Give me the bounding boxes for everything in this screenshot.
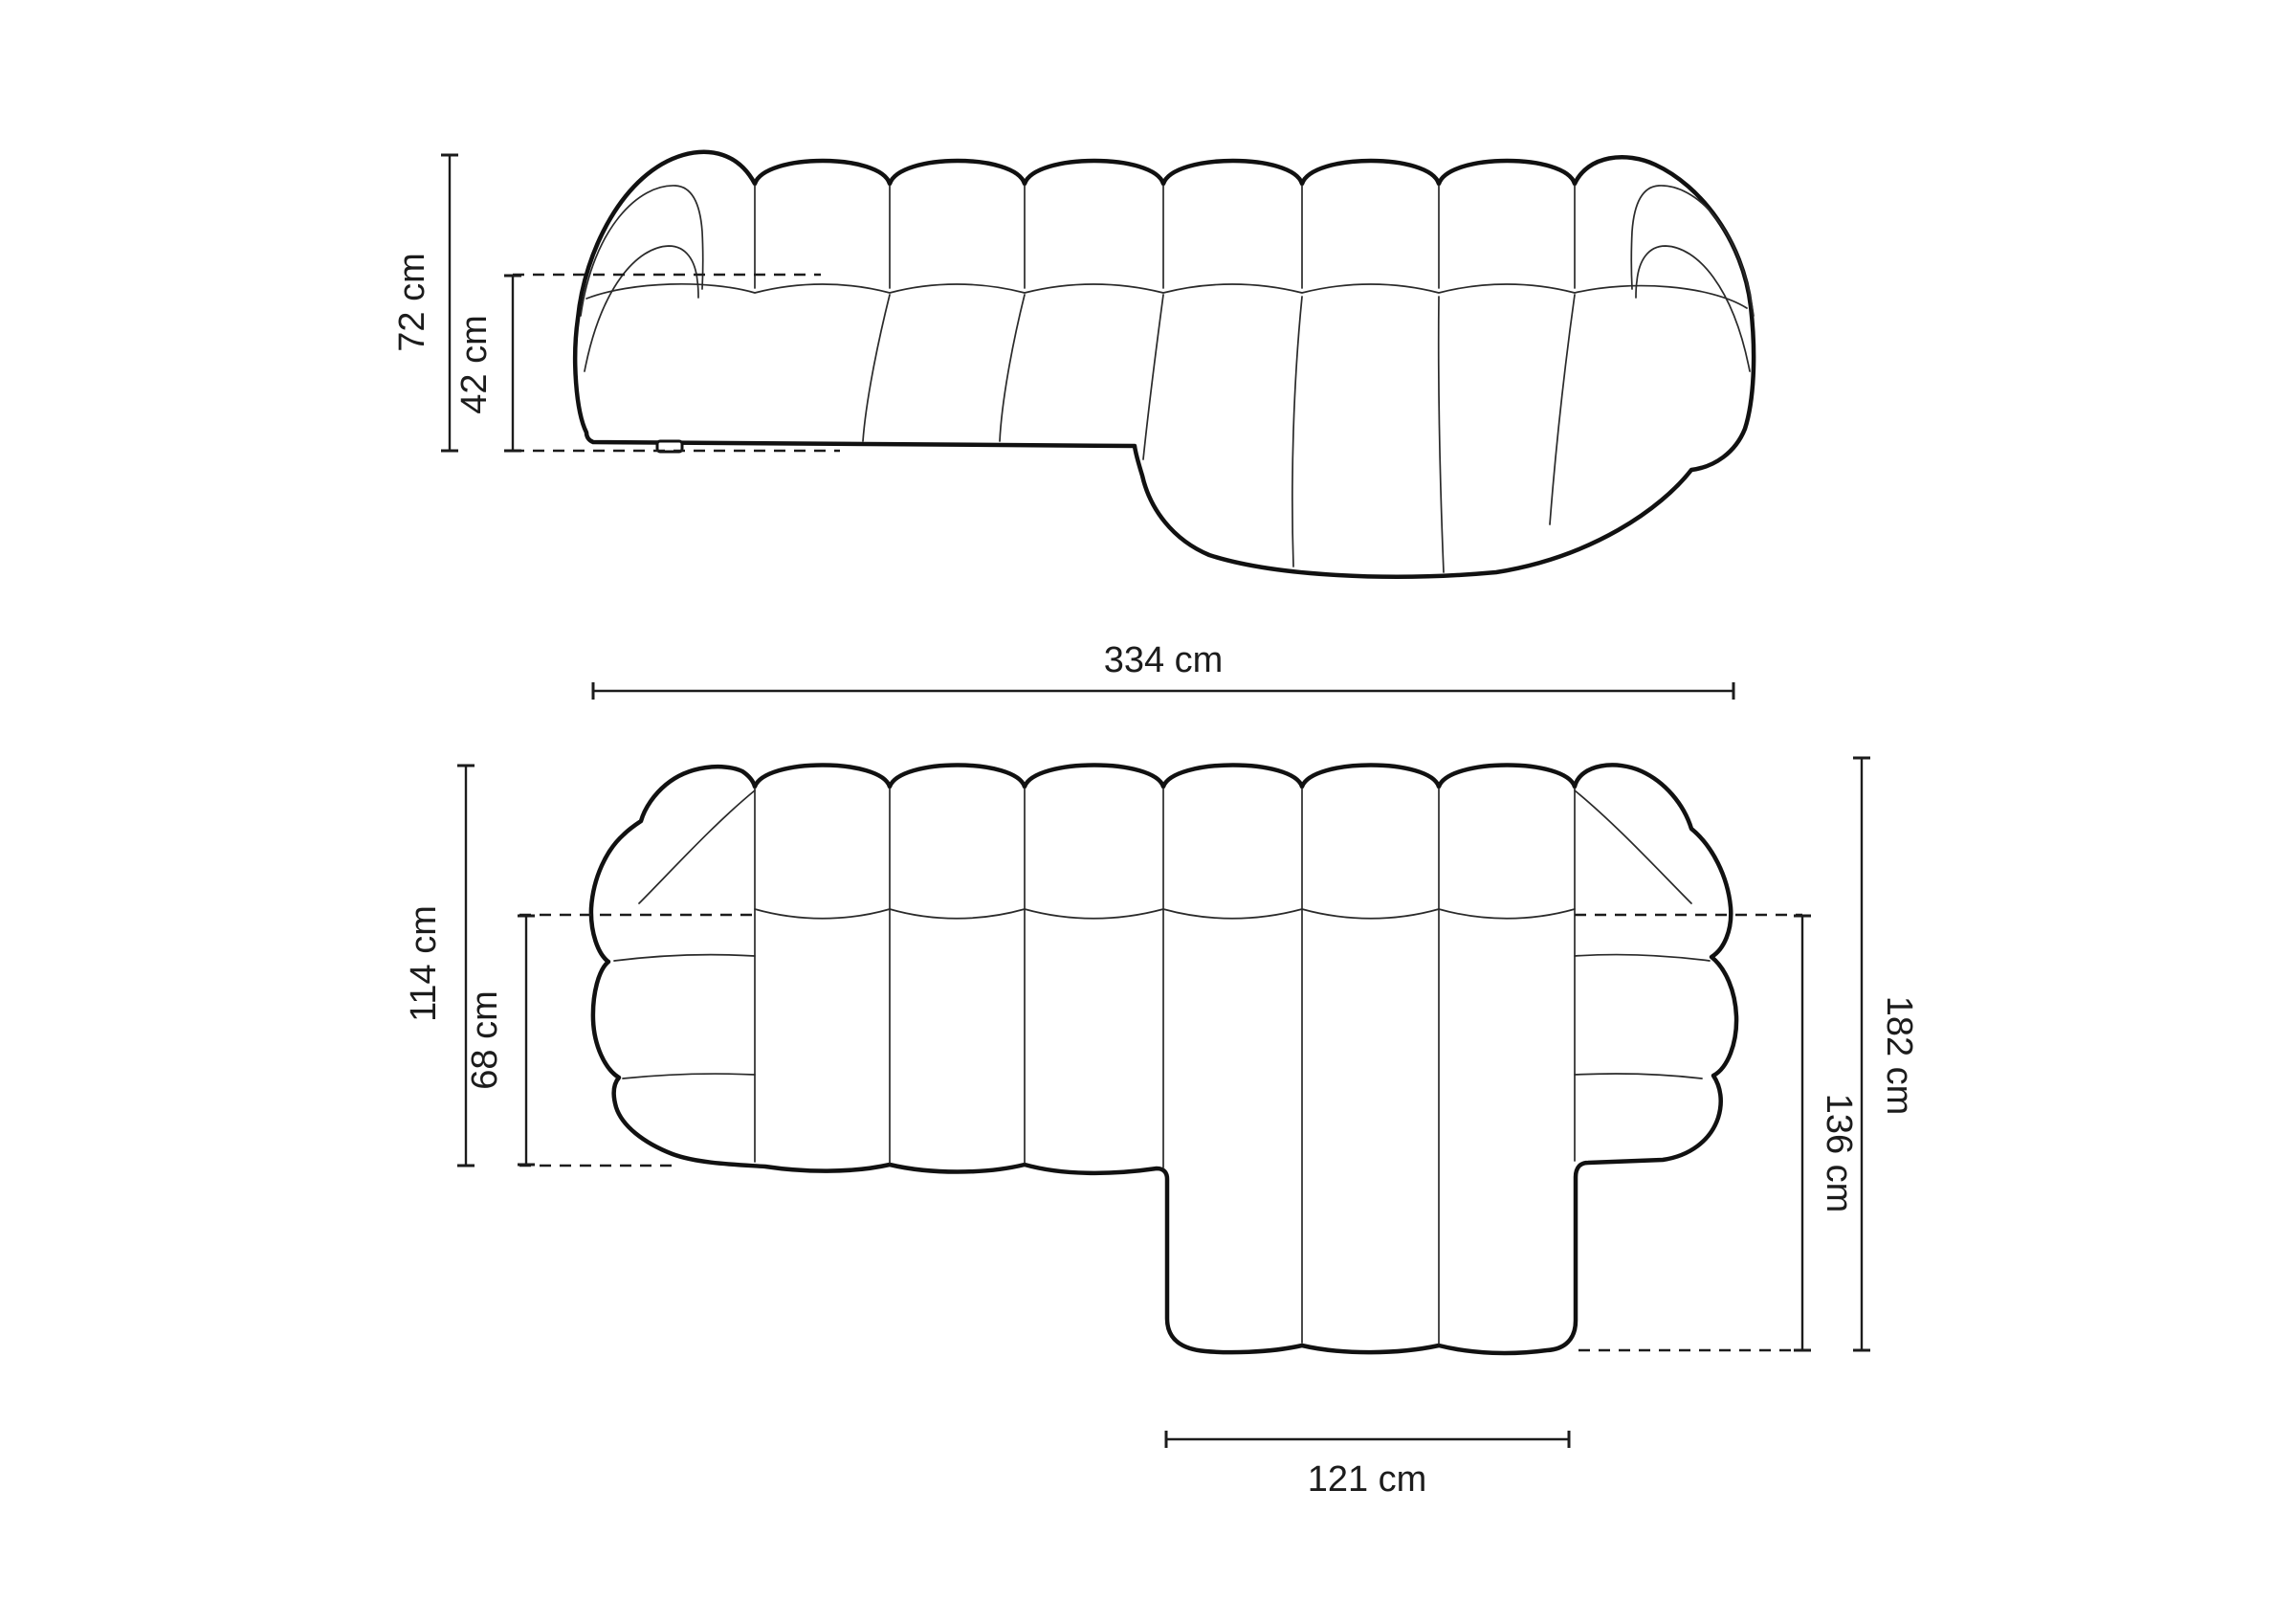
plan-chaise-width-dimension: 121 cm (1166, 1431, 1569, 1500)
front-total-width-label: 334 cm (1104, 640, 1224, 680)
front-total-height-label: 72 cm (392, 253, 432, 351)
front-sofa-outline (575, 152, 1754, 577)
plan-total-depth-dimension: 182 cm (1853, 758, 1919, 1350)
front-seat-height-dimension: 42 cm (454, 276, 521, 451)
dimension-drawing-canvas: 72 cm 42 cm 334 cm (0, 0, 2296, 1623)
front-total-width-dimension: 334 cm (593, 640, 1733, 700)
plan-chaise-width-label: 121 cm (1308, 1459, 1427, 1500)
sofa-dimension-diagram: 72 cm 42 cm 334 cm (0, 0, 2296, 1623)
plan-total-depth-label: 182 cm (1879, 996, 1919, 1116)
plan-seat-depth-dimension: 68 cm (465, 916, 535, 1165)
plan-chaise-depth-label: 136 cm (1819, 1094, 1859, 1213)
plan-body-depth-dimension: 114 cm (404, 766, 475, 1166)
plan-chaise-depth-dimension: 136 cm (1794, 916, 1859, 1350)
front-total-height-dimension: 72 cm (392, 155, 458, 451)
front-elevation-view: 72 cm 42 cm 334 cm (392, 152, 1754, 700)
plan-body-depth-label: 114 cm (404, 905, 444, 1022)
top-plan-view: 114 cm 68 cm 136 cm 182 cm 1 (404, 758, 1919, 1500)
front-seat-height-label: 42 cm (454, 315, 495, 413)
plan-seat-depth-label: 68 cm (465, 990, 505, 1089)
